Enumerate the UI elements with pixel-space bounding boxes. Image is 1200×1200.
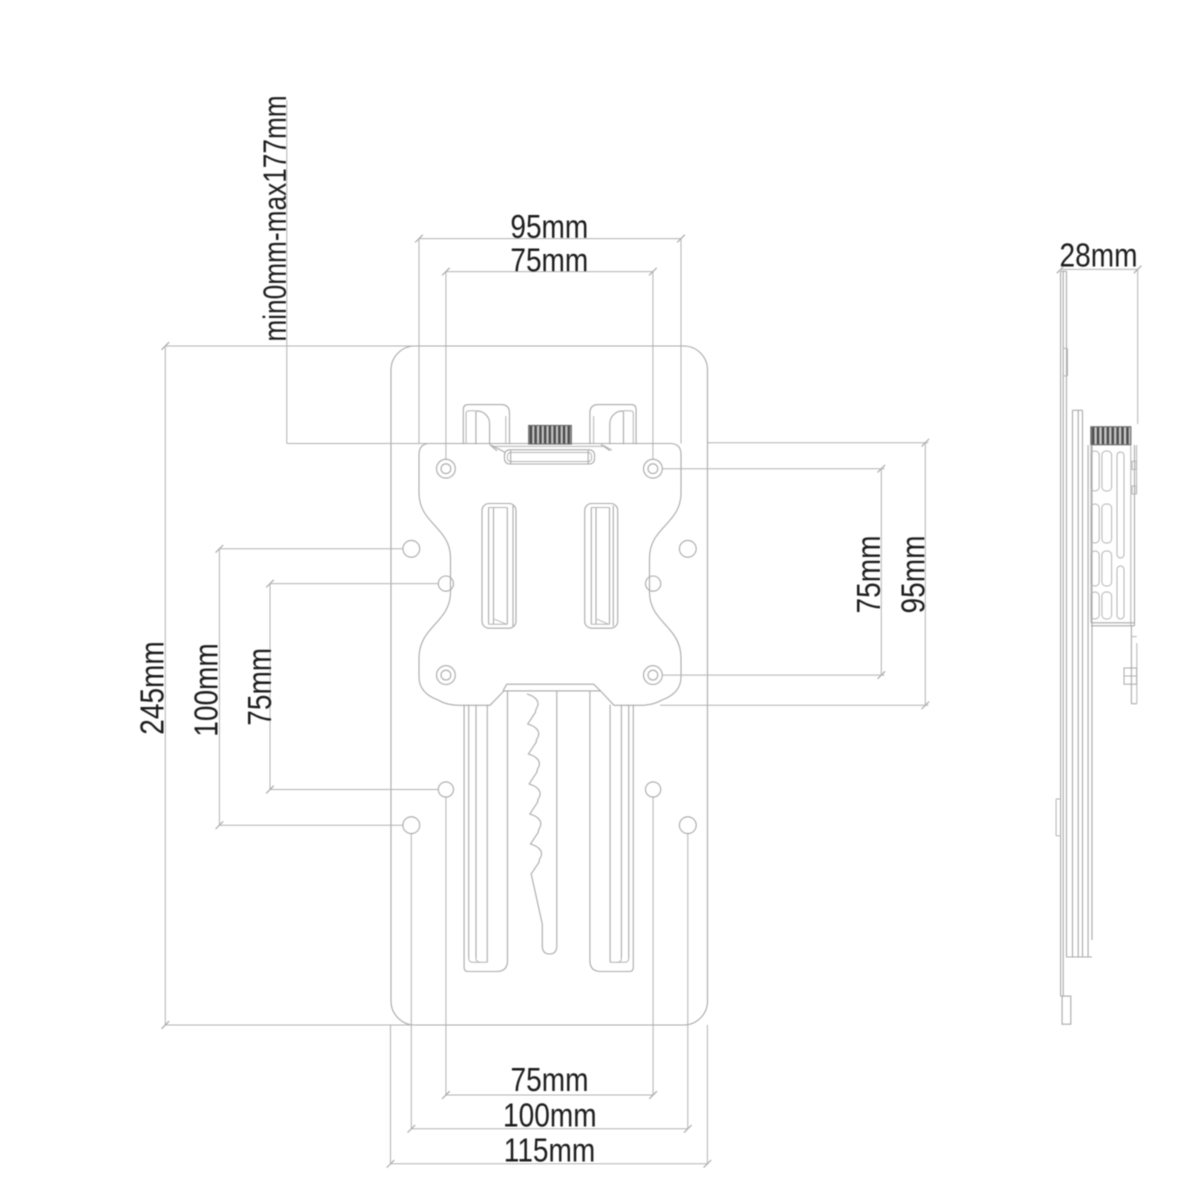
svg-text:95mm: 95mm [895,536,932,614]
svg-text:75mm: 75mm [511,1062,589,1099]
svg-text:min0mm-max177mm: min0mm-max177mm [258,95,293,341]
svg-text:245mm: 245mm [134,641,171,734]
svg-text:28mm: 28mm [1060,237,1138,274]
svg-text:75mm: 75mm [851,536,888,614]
svg-text:100mm: 100mm [503,1097,596,1134]
svg-text:75mm: 75mm [510,242,588,279]
svg-text:115mm: 115mm [504,1132,595,1169]
svg-text:75mm: 75mm [242,648,279,726]
svg-text:95mm: 95mm [510,209,588,246]
svg-text:100mm: 100mm [188,643,225,736]
